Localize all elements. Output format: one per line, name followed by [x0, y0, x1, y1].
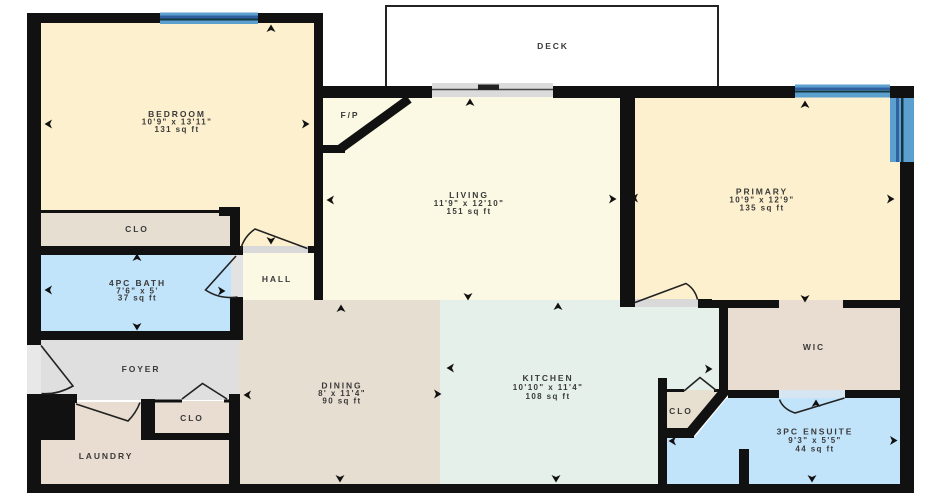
svg-text:108 sq ft: 108 sq ft — [525, 392, 570, 401]
svg-text:131 sq ft: 131 sq ft — [154, 125, 199, 134]
svg-text:CLO: CLO — [180, 413, 204, 423]
svg-text:FOYER: FOYER — [122, 364, 161, 374]
svg-text:DECK: DECK — [537, 41, 569, 51]
svg-text:KITCHEN: KITCHEN — [522, 373, 573, 383]
svg-text:CLO: CLO — [125, 224, 149, 234]
svg-text:CLO: CLO — [669, 406, 693, 416]
svg-text:F/P: F/P — [341, 110, 360, 120]
svg-text:LAUNDRY: LAUNDRY — [79, 451, 134, 461]
svg-text:10'10" x 11'4": 10'10" x 11'4" — [513, 383, 584, 392]
svg-text:3PC ENSUITE: 3PC ENSUITE — [777, 427, 854, 437]
svg-text:WIC: WIC — [803, 342, 825, 352]
svg-text:151 sq ft: 151 sq ft — [446, 207, 491, 216]
svg-text:90 sq ft: 90 sq ft — [322, 397, 361, 406]
svg-text:135 sq ft: 135 sq ft — [739, 204, 784, 213]
svg-text:37 sq ft: 37 sq ft — [118, 294, 157, 303]
svg-text:44 sq ft: 44 sq ft — [795, 445, 834, 454]
svg-text:HALL: HALL — [262, 274, 292, 284]
